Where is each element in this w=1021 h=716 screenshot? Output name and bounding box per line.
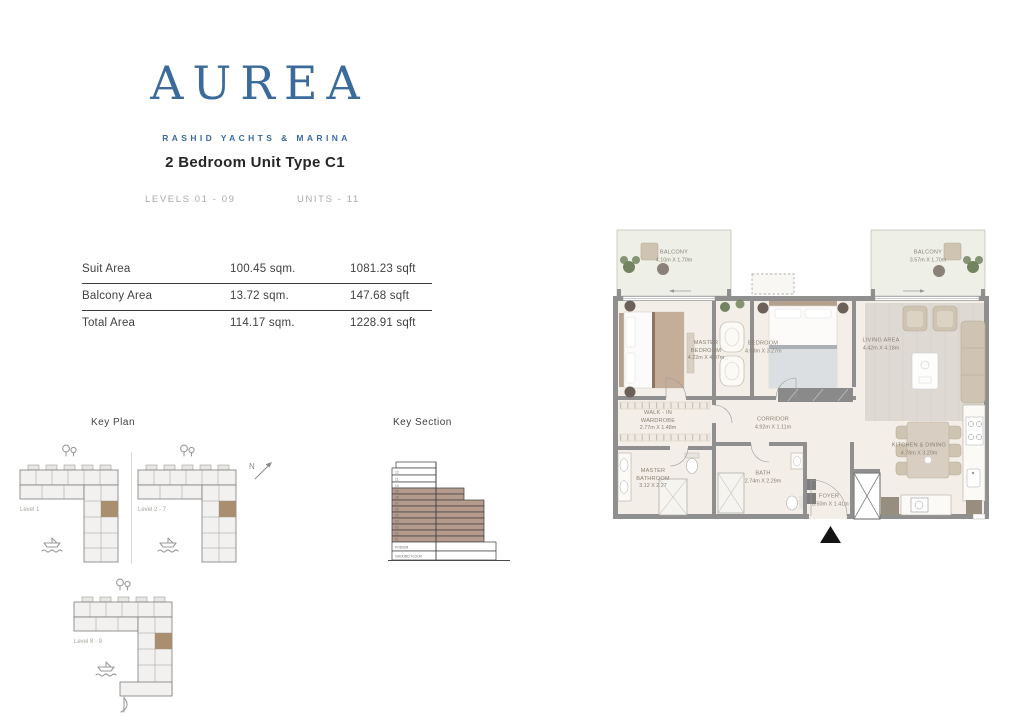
balcony-right-area [871, 230, 985, 296]
floor-label: 10 [395, 484, 399, 488]
floor-label: 04 [395, 520, 399, 524]
bedroom-bed [758, 301, 849, 396]
nightstand [758, 303, 769, 314]
bench [687, 333, 694, 373]
balcony-left-area [617, 230, 731, 296]
dining-set [896, 422, 961, 478]
key-section-title: Key Section [393, 417, 452, 428]
balcony-table [657, 263, 669, 275]
area-label: Balcony Area [82, 290, 230, 302]
highlighted-unit [155, 633, 172, 649]
highlighted-unit [219, 501, 236, 517]
levels-label: LEVELS 01 - 09 [145, 194, 236, 205]
floor-label: 08 [395, 496, 399, 500]
floor-label: 06 [395, 508, 399, 512]
floor-label: 12 [395, 470, 399, 474]
entrance-marker-icon [820, 526, 841, 543]
utility-box [807, 493, 816, 504]
area-sqm: 114.17 sqm. [230, 317, 350, 329]
area-label: Suit Area [82, 263, 230, 275]
key-plan-level-2-7: Level 2 - 7 [136, 462, 240, 564]
key-plan-level-8-9: Level 8 - 9 [72, 594, 176, 698]
floor-plan-drawing [611, 227, 991, 547]
master-bed [619, 301, 694, 398]
brand-logo: AUREA [115, 56, 395, 110]
kitchen-sink [967, 469, 980, 487]
sail-icon [117, 695, 131, 715]
area-sqft: 147.68 sqft [350, 290, 432, 302]
marina-icon [94, 660, 120, 678]
floor-label: 07 [395, 502, 399, 506]
floor-label: 03 [395, 526, 399, 530]
kitchen-cabinet [966, 500, 982, 515]
area-row-suit: Suit Area 100.45 sqm. 1081.23 sqft [82, 257, 432, 284]
area-label: Total Area [82, 317, 230, 329]
brochure-page: AUREA RASHID YACHTS & MARINA 2 Bedroom U… [0, 0, 1021, 716]
highlighted-unit [101, 501, 118, 517]
stove [966, 417, 983, 445]
area-table: Suit Area 100.45 sqm. 1081.23 sqft Balco… [82, 257, 432, 337]
toilet [687, 459, 698, 474]
key-section-diagram: 12 11 10 09 08 07 06 05 04 03 02 01 PODI… [388, 460, 512, 566]
balcony-table [933, 265, 945, 277]
balcony-chair [641, 243, 658, 260]
marina-icon [40, 536, 66, 554]
key-plan-level-label: Level 8 - 9 [74, 639, 103, 645]
key-plan-title: Key Plan [91, 417, 135, 428]
nightstand [625, 387, 636, 398]
kitchen-cabinet [881, 497, 899, 515]
podium-label: PODIUM [395, 545, 408, 549]
nightstand [838, 303, 849, 314]
floor-plan: BALCONY 4.10m X 1.70m BALCONY 3.57m X 1.… [611, 227, 991, 547]
key-plan-level-1: Level 1 [18, 462, 122, 564]
brand-tagline: RASHID YACHTS & MARINA [115, 133, 395, 143]
north-arrow-icon: N [248, 455, 278, 485]
marina-icon [156, 536, 182, 554]
utility-box [807, 479, 816, 490]
floor-label: 02 [395, 532, 399, 536]
area-sqm: 100.45 sqm. [230, 263, 350, 275]
toilet [787, 496, 798, 510]
floor-label: 05 [395, 514, 399, 518]
floor-label: 09 [395, 490, 399, 494]
key-plan-level-label: Level 2 - 7 [138, 507, 167, 513]
ground-floor-label: GROUND FLOOR [395, 554, 423, 558]
floor-label: 01 [395, 538, 399, 542]
sofa [961, 321, 985, 403]
units-label: UNITS - 11 [297, 194, 360, 205]
key-plan-level-label: Level 1 [20, 507, 40, 513]
floor-label: 11 [395, 477, 399, 481]
nightstand [625, 301, 636, 312]
north-label: N [249, 462, 255, 471]
trees-icon [60, 442, 80, 458]
shaft [854, 469, 880, 519]
area-sqm: 13.72 sqm. [230, 290, 350, 302]
area-sqft: 1228.91 sqft [350, 317, 432, 329]
corridor-closet [778, 388, 853, 402]
balcony-chair [944, 243, 961, 260]
area-row-balcony: Balcony Area 13.72 sqm. 147.68 sqft [82, 284, 432, 311]
service-window [973, 514, 985, 519]
trees-icon [114, 576, 134, 592]
area-sqft: 1081.23 sqft [350, 263, 432, 275]
ac-ledge [752, 274, 794, 294]
dining-table [907, 422, 949, 478]
key-plan-divider [131, 452, 132, 564]
coffee-table [912, 353, 938, 389]
unit-title: 2 Bedroom Unit Type C1 [115, 154, 395, 171]
area-row-total: Total Area 114.17 sqm. 1228.91 sqft [82, 311, 432, 337]
trees-icon [178, 442, 198, 458]
